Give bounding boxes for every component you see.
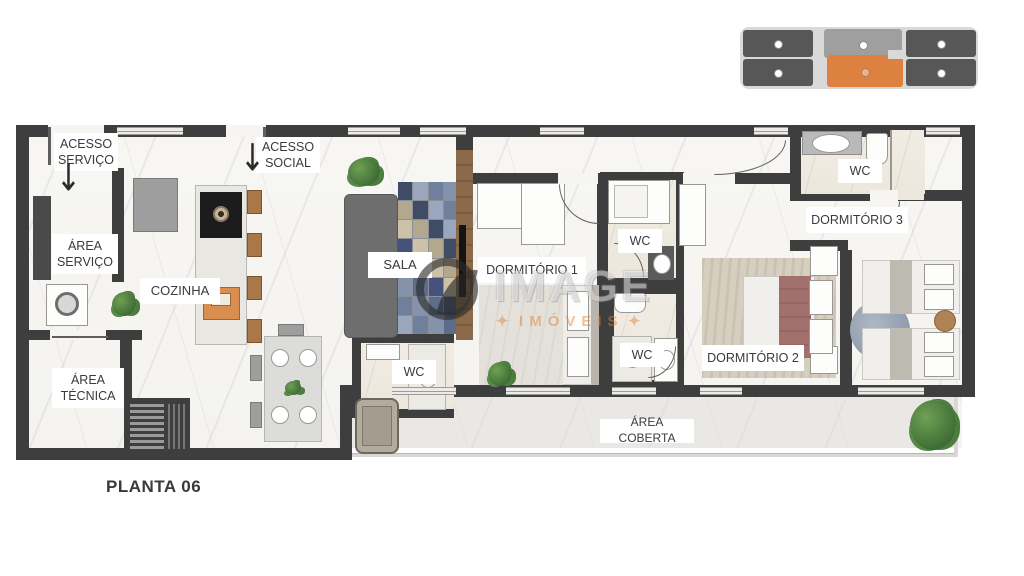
wc-a-bathtub-inner bbox=[614, 185, 648, 218]
dinner-plate bbox=[271, 406, 289, 424]
key-plan-dot bbox=[937, 69, 946, 78]
hall-corridor-opening bbox=[683, 173, 735, 184]
dorm3-side-table bbox=[934, 310, 956, 332]
tecnica-door-opening bbox=[50, 330, 106, 340]
wall-right-outer bbox=[962, 125, 975, 397]
dorm3-bed2-band bbox=[890, 328, 912, 380]
dorm3-bed1-band bbox=[890, 260, 912, 314]
key-plan-dot bbox=[774, 69, 783, 78]
label-area-coberta: ÁREA COBERTA bbox=[600, 419, 694, 443]
wall-terrace-left bbox=[340, 385, 352, 460]
label-sala: SALA bbox=[368, 252, 432, 278]
wc3-door-opening bbox=[870, 190, 898, 201]
dorm1-headboard bbox=[591, 285, 599, 385]
terrace-edge-bottom bbox=[346, 453, 958, 457]
key-plan-dot bbox=[937, 40, 946, 49]
window-sala-1 bbox=[348, 127, 400, 135]
window-terrace-3 bbox=[612, 387, 656, 395]
window-kitchen bbox=[117, 127, 183, 135]
dinner-plate bbox=[299, 349, 317, 367]
label-wc-sala: WC bbox=[392, 360, 436, 384]
label-cozinha: COZINHA bbox=[140, 278, 220, 304]
wall-left-outer bbox=[16, 125, 29, 460]
service-entry-door-leaf bbox=[48, 127, 51, 165]
dorm3-bed1-pillow bbox=[924, 289, 954, 310]
social-entry-opening bbox=[226, 125, 266, 137]
bar-stool bbox=[247, 190, 262, 214]
arrow-acesso-servico: ↓ bbox=[56, 160, 81, 198]
dinner-plate bbox=[271, 349, 289, 367]
plant-cozinha bbox=[112, 292, 136, 316]
window-dorm1-top bbox=[540, 127, 584, 135]
key-plan-unit-notch bbox=[888, 50, 903, 59]
label-wc-a: WC bbox=[618, 229, 662, 253]
hall-wardrobe bbox=[679, 184, 706, 246]
label-area-servico: ÁREA SERVIÇO bbox=[52, 234, 118, 274]
key-plan-dot bbox=[859, 41, 868, 50]
key-plan-dot bbox=[774, 40, 783, 49]
dining-chair bbox=[250, 402, 262, 428]
label-dormitorio-3: DORMITÓRIO 3 bbox=[806, 207, 908, 233]
wc-b-toilet bbox=[614, 293, 646, 313]
dorm1-pillow bbox=[567, 291, 589, 331]
tv-screen bbox=[459, 225, 466, 297]
window-terrace-2 bbox=[506, 387, 570, 395]
grill-grate bbox=[130, 404, 164, 449]
dining-chair bbox=[278, 324, 304, 336]
dorm1-wardrobe-ext bbox=[521, 183, 565, 245]
window-terrace-4 bbox=[700, 387, 742, 395]
dorm3-bed1-pillow bbox=[924, 264, 954, 285]
label-wc-3: WC bbox=[838, 159, 882, 183]
dorm3-bed2-pillow bbox=[924, 356, 954, 377]
key-plan-dot-highlighted bbox=[861, 68, 870, 77]
floor-plan-page: ACESSO SERVIÇO ↓ ACESSO SOCIAL ↓ ÁREA SE… bbox=[0, 0, 1024, 576]
label-wc-b: WC bbox=[620, 343, 664, 367]
dorm3-bed2-pillow bbox=[924, 332, 954, 353]
bar-stool bbox=[247, 319, 262, 343]
window-wc3-top bbox=[926, 127, 960, 135]
label-acesso-social: ACESSO SOCIAL bbox=[256, 137, 320, 173]
window-sala-2 bbox=[420, 127, 466, 135]
dining-chair bbox=[250, 355, 262, 381]
plant-dorm1 bbox=[488, 362, 512, 386]
dorm2-pillow bbox=[809, 280, 833, 315]
plant-terrace bbox=[910, 400, 956, 450]
plant-sala bbox=[348, 158, 380, 186]
wc-sala-sink bbox=[366, 344, 400, 360]
fridge bbox=[133, 178, 178, 232]
dorm2-pillow bbox=[809, 319, 833, 354]
dorm1-pillow bbox=[567, 337, 589, 377]
tecnica-door-leaf bbox=[52, 336, 108, 338]
table-centerpiece-plant bbox=[285, 381, 301, 395]
dorm2-wardrobe-top bbox=[810, 246, 838, 276]
window-terrace-5 bbox=[858, 387, 924, 395]
washing-machine-drum bbox=[55, 292, 79, 316]
dinner-plate bbox=[299, 406, 317, 424]
grill-side-grate bbox=[168, 404, 186, 449]
bar-stool bbox=[247, 276, 262, 300]
arrow-acesso-social: ↓ bbox=[240, 140, 265, 178]
window-hall-top bbox=[754, 127, 788, 135]
label-area-tecnica: ÁREA TÉCNICA bbox=[52, 368, 124, 408]
bar-stool bbox=[247, 233, 262, 257]
window-terrace-1 bbox=[392, 387, 456, 395]
tv-wall-stub bbox=[456, 137, 473, 150]
terrace-armchair-cushion bbox=[362, 406, 392, 446]
wc-3-sink bbox=[812, 134, 850, 153]
dorm1-door-opening bbox=[558, 173, 598, 184]
label-dormitorio-1: DORMITÓRIO 1 bbox=[478, 257, 586, 283]
cooktop-burner bbox=[213, 206, 229, 222]
wc-a-sink bbox=[653, 254, 671, 274]
label-dormitorio-2: DORMITÓRIO 2 bbox=[702, 345, 804, 371]
servico-tall-cabinet bbox=[33, 196, 51, 280]
plan-title: PLANTA 06 bbox=[106, 477, 201, 497]
